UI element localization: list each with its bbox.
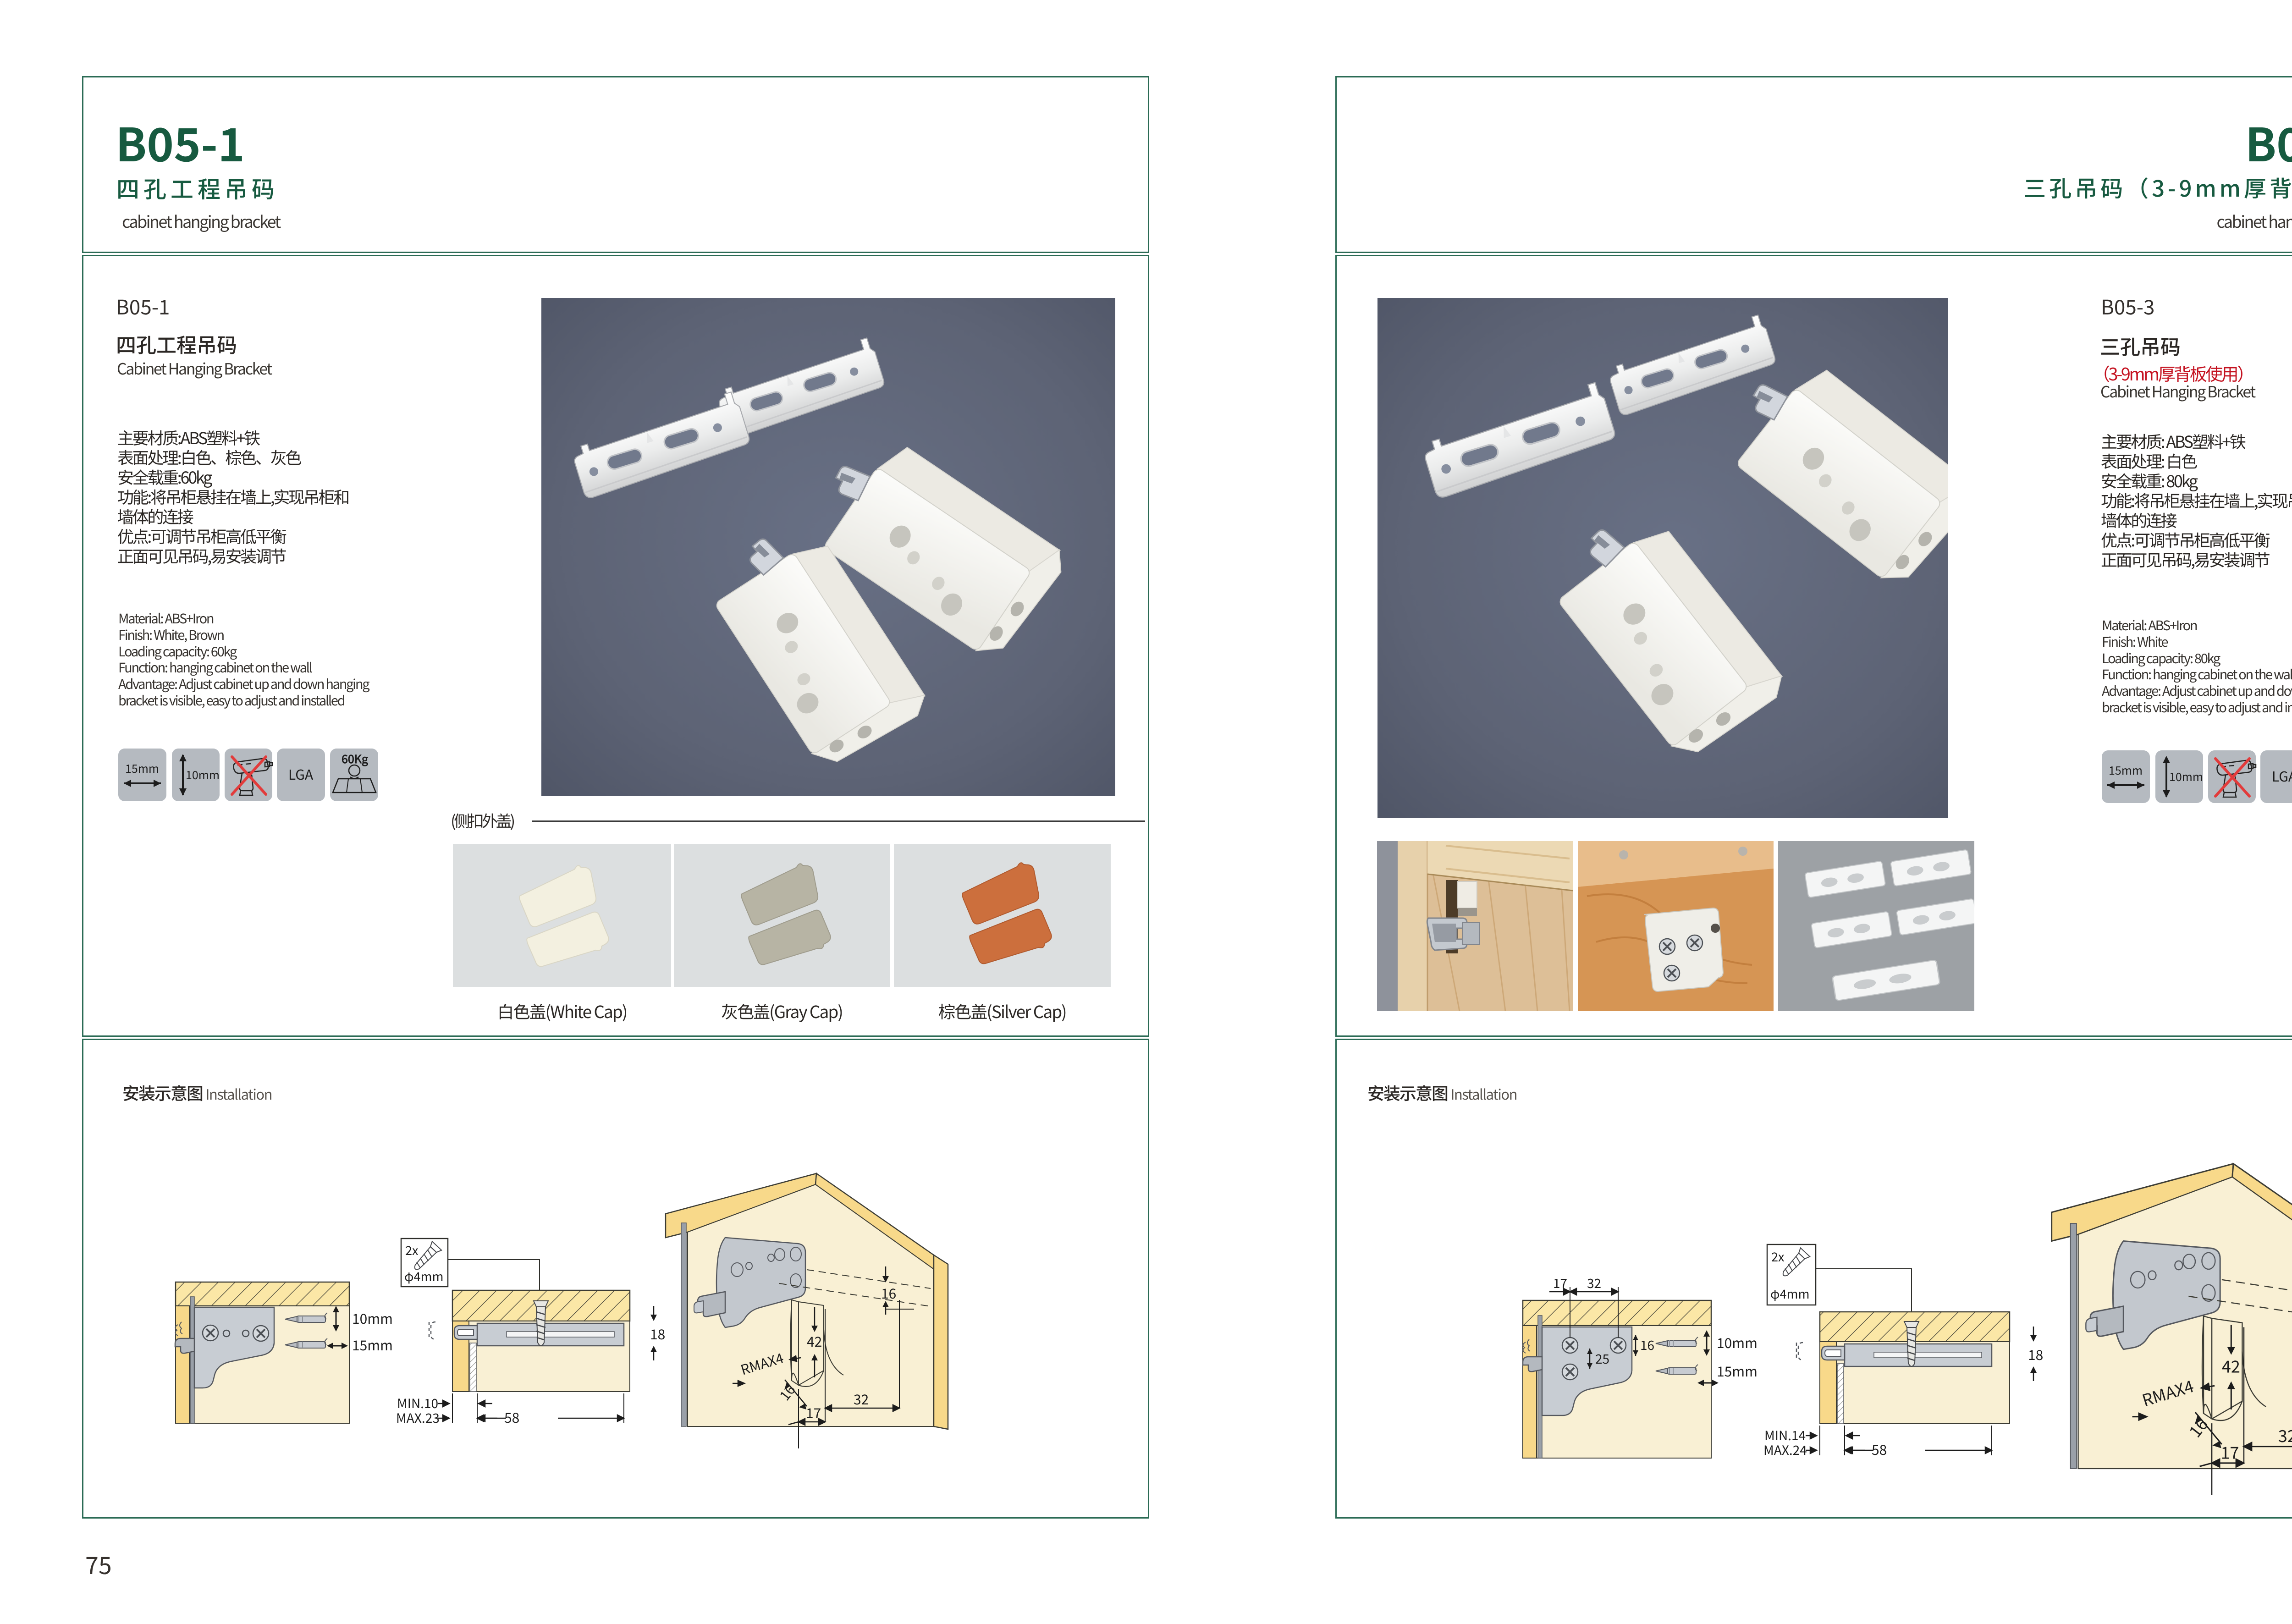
svg-text:10mm: 10mm [352,1308,393,1328]
svg-text:LGA: LGA [288,764,314,784]
svg-text:17: 17 [806,1402,821,1422]
svg-text:18: 18 [650,1323,665,1343]
svg-text:2x: 2x [405,1241,419,1259]
svg-text:15mm: 15mm [1717,1360,1758,1381]
svg-text:32: 32 [1587,1274,1601,1292]
svg-text:60Kg: 60Kg [342,750,369,767]
svg-text:16: 16 [881,1283,896,1303]
svg-text:17: 17 [1553,1274,1567,1292]
svg-text:16: 16 [1640,1336,1654,1354]
svg-text:18: 18 [2028,1344,2043,1364]
svg-text:10mm: 10mm [186,766,220,783]
svg-text:MAX.24: MAX.24 [1763,1441,1807,1459]
svg-text:15mm: 15mm [2109,762,2143,778]
svg-text:58: 58 [504,1407,519,1427]
svg-text:10mm: 10mm [1717,1332,1758,1352]
svg-text:32: 32 [854,1388,869,1409]
svg-text:15mm: 15mm [125,760,159,776]
svg-text:10mm: 10mm [2169,768,2203,785]
svg-text:25: 25 [1595,1349,1609,1368]
svg-text:φ4mm: φ4mm [1770,1284,1810,1302]
svg-text:58: 58 [1872,1439,1887,1459]
svg-text:φ4mm: φ4mm [404,1267,444,1285]
svg-text:MAX.23: MAX.23 [396,1409,440,1427]
svg-text:2x: 2x [1771,1247,1785,1265]
svg-text:42: 42 [807,1331,822,1351]
svg-text:LGA: LGA [2272,765,2292,786]
svg-text:15mm: 15mm [352,1334,393,1354]
